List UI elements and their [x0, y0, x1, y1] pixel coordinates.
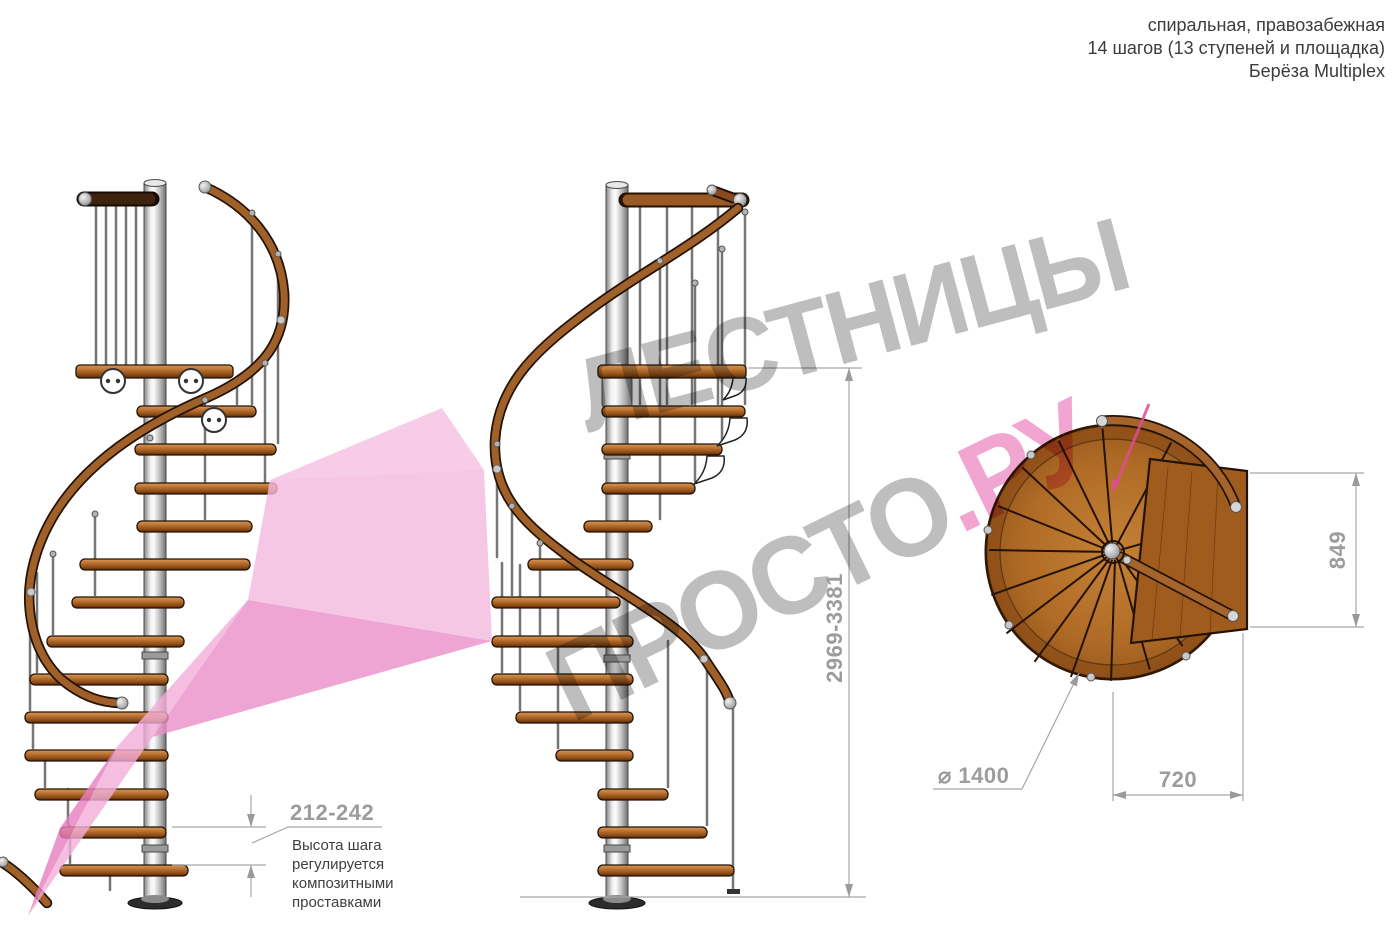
- dim-platform-width-label: 720: [1159, 767, 1197, 793]
- title-line-steps: 14 шагов (13 ступеней и площадка): [1087, 37, 1385, 60]
- title-block: спиральная, правозабежная 14 шагов (13 с…: [1087, 14, 1385, 83]
- dim-step-height-label: 212-242: [290, 800, 374, 826]
- dim-total-height-label: 2969-3381: [822, 573, 848, 683]
- drawing-canvas: ЛЕСТНИЦЫ ПРОСТО.РУ спиральная, правозабе…: [0, 0, 1400, 938]
- note-line: композитными: [292, 874, 394, 893]
- dim-platform-depth-label: 849: [1325, 531, 1351, 569]
- note-line: Высота шага: [292, 836, 394, 855]
- title-line-material: Берёза Multiplex: [1087, 60, 1385, 83]
- note-line: регулируется: [292, 855, 394, 874]
- staircase-technical-drawing: [0, 0, 1400, 938]
- side-view-left: [0, 180, 285, 910]
- title-line-type: спиральная, правозабежная: [1087, 14, 1385, 37]
- note-line: проставками: [292, 893, 394, 912]
- step-height-note: Высота шага регулируется композитными пр…: [292, 836, 394, 912]
- dim-diameter-label: ⌀ 1400: [938, 763, 1009, 789]
